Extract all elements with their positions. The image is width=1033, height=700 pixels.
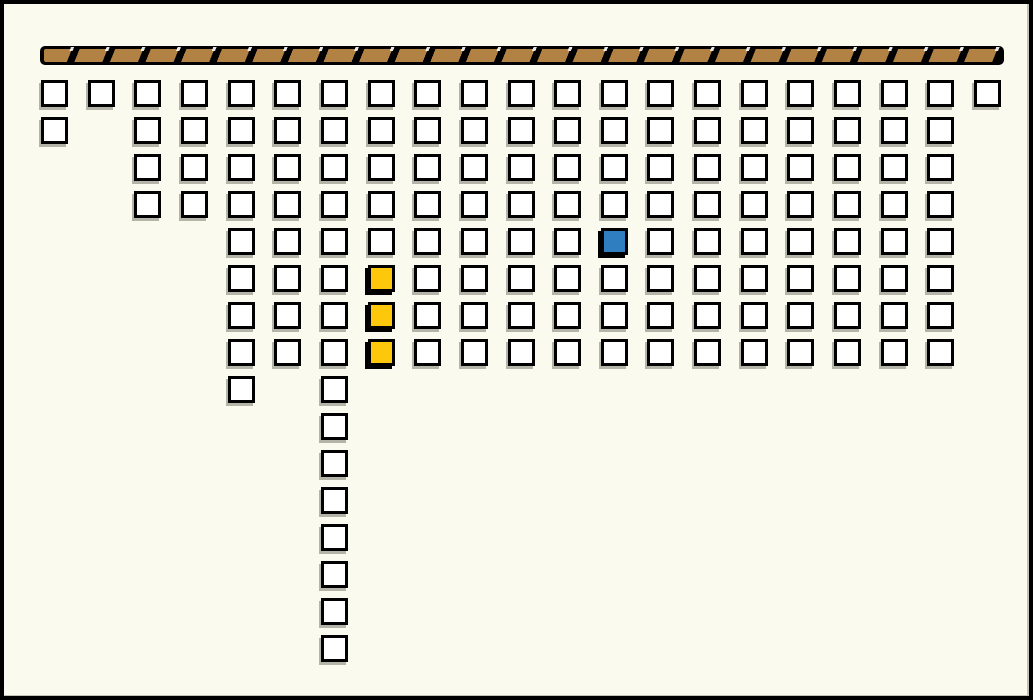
block[interactable] — [694, 339, 721, 366]
block[interactable] — [414, 154, 441, 181]
block[interactable] — [228, 302, 255, 329]
block[interactable] — [647, 339, 674, 366]
block[interactable] — [228, 80, 255, 107]
block[interactable] — [368, 191, 395, 218]
block[interactable] — [834, 228, 861, 255]
block[interactable] — [321, 524, 348, 551]
block[interactable] — [414, 302, 441, 329]
block[interactable] — [834, 339, 861, 366]
game-board — [0, 0, 1033, 700]
block[interactable] — [321, 265, 348, 292]
block[interactable] — [881, 228, 908, 255]
block[interactable] — [927, 191, 954, 218]
block[interactable] — [228, 265, 255, 292]
block[interactable] — [601, 265, 628, 292]
block[interactable] — [321, 413, 348, 440]
block[interactable] — [554, 302, 581, 329]
block[interactable] — [414, 339, 441, 366]
block[interactable] — [554, 265, 581, 292]
block[interactable] — [834, 302, 861, 329]
blue-block[interactable] — [601, 228, 628, 255]
block[interactable] — [321, 376, 348, 403]
block[interactable] — [321, 561, 348, 588]
block[interactable] — [134, 191, 161, 218]
block[interactable] — [927, 117, 954, 144]
block[interactable] — [787, 80, 814, 107]
block[interactable] — [647, 80, 674, 107]
block[interactable] — [694, 228, 721, 255]
block[interactable] — [741, 117, 768, 144]
block[interactable] — [834, 154, 861, 181]
block[interactable] — [881, 302, 908, 329]
block[interactable] — [787, 265, 814, 292]
block[interactable] — [228, 339, 255, 366]
block[interactable] — [647, 191, 674, 218]
block[interactable] — [741, 339, 768, 366]
beam-tick-marks — [44, 47, 1000, 51]
block[interactable] — [694, 191, 721, 218]
block[interactable] — [554, 80, 581, 107]
block[interactable] — [601, 191, 628, 218]
block[interactable] — [927, 228, 954, 255]
block[interactable] — [881, 191, 908, 218]
block[interactable] — [274, 154, 301, 181]
block[interactable] — [181, 191, 208, 218]
block[interactable] — [134, 117, 161, 144]
block[interactable] — [461, 154, 488, 181]
block[interactable] — [228, 117, 255, 144]
block[interactable] — [134, 154, 161, 181]
block[interactable] — [508, 228, 535, 255]
block[interactable] — [321, 117, 348, 144]
block[interactable] — [601, 302, 628, 329]
block[interactable] — [694, 302, 721, 329]
block[interactable] — [321, 154, 348, 181]
block[interactable] — [508, 191, 535, 218]
block[interactable] — [881, 154, 908, 181]
block[interactable] — [647, 228, 674, 255]
block[interactable] — [554, 339, 581, 366]
block[interactable] — [601, 154, 628, 181]
block[interactable] — [274, 339, 301, 366]
block[interactable] — [321, 80, 348, 107]
block[interactable] — [927, 80, 954, 107]
block[interactable] — [134, 80, 161, 107]
block[interactable] — [787, 339, 814, 366]
block[interactable] — [787, 228, 814, 255]
block[interactable] — [414, 265, 441, 292]
block[interactable] — [274, 228, 301, 255]
block[interactable] — [787, 154, 814, 181]
block[interactable] — [414, 191, 441, 218]
block[interactable] — [461, 228, 488, 255]
block[interactable] — [881, 265, 908, 292]
block[interactable] — [554, 191, 581, 218]
block[interactable] — [228, 228, 255, 255]
block[interactable] — [834, 265, 861, 292]
block[interactable] — [368, 117, 395, 144]
block[interactable] — [554, 228, 581, 255]
block[interactable] — [321, 191, 348, 218]
block[interactable] — [741, 154, 768, 181]
block[interactable] — [41, 117, 68, 144]
block[interactable] — [787, 302, 814, 329]
block[interactable] — [694, 265, 721, 292]
block[interactable] — [414, 80, 441, 107]
block[interactable] — [461, 191, 488, 218]
block[interactable] — [974, 80, 1001, 107]
block[interactable] — [787, 191, 814, 218]
yellow-block[interactable] — [368, 265, 395, 292]
block[interactable] — [414, 228, 441, 255]
block[interactable] — [461, 80, 488, 107]
block[interactable] — [88, 80, 115, 107]
block[interactable] — [461, 302, 488, 329]
block[interactable] — [834, 117, 861, 144]
block[interactable] — [181, 117, 208, 144]
block[interactable] — [741, 191, 768, 218]
block[interactable] — [647, 154, 674, 181]
block[interactable] — [274, 302, 301, 329]
block[interactable] — [461, 339, 488, 366]
block[interactable] — [647, 302, 674, 329]
block[interactable] — [787, 117, 814, 144]
block[interactable] — [508, 117, 535, 144]
block[interactable] — [927, 154, 954, 181]
block[interactable] — [414, 117, 441, 144]
block[interactable] — [228, 191, 255, 218]
block[interactable] — [274, 117, 301, 144]
block[interactable] — [321, 598, 348, 625]
block[interactable] — [274, 80, 301, 107]
block[interactable] — [601, 117, 628, 144]
block[interactable] — [461, 117, 488, 144]
block[interactable] — [601, 339, 628, 366]
block[interactable] — [274, 265, 301, 292]
striped-beam — [40, 46, 1004, 65]
block[interactable] — [834, 191, 861, 218]
block[interactable] — [741, 302, 768, 329]
block[interactable] — [41, 80, 68, 107]
block[interactable] — [181, 80, 208, 107]
block[interactable] — [508, 154, 535, 181]
block[interactable] — [368, 228, 395, 255]
block[interactable] — [228, 154, 255, 181]
yellow-block[interactable] — [368, 302, 395, 329]
block[interactable] — [321, 302, 348, 329]
block[interactable] — [741, 265, 768, 292]
block[interactable] — [647, 265, 674, 292]
block[interactable] — [321, 635, 348, 662]
block[interactable] — [927, 302, 954, 329]
block[interactable] — [694, 80, 721, 107]
block[interactable] — [554, 154, 581, 181]
block[interactable] — [694, 154, 721, 181]
block[interactable] — [461, 265, 488, 292]
block[interactable] — [508, 302, 535, 329]
block[interactable] — [508, 80, 535, 107]
block[interactable] — [601, 80, 628, 107]
block[interactable] — [881, 80, 908, 107]
block[interactable] — [321, 450, 348, 477]
block[interactable] — [368, 154, 395, 181]
block[interactable] — [694, 117, 721, 144]
block[interactable] — [508, 265, 535, 292]
block[interactable] — [741, 80, 768, 107]
block[interactable] — [228, 376, 255, 403]
block[interactable] — [834, 80, 861, 107]
block[interactable] — [321, 487, 348, 514]
block[interactable] — [881, 117, 908, 144]
block[interactable] — [927, 265, 954, 292]
block[interactable] — [927, 339, 954, 366]
block[interactable] — [508, 339, 535, 366]
block[interactable] — [321, 228, 348, 255]
block[interactable] — [741, 228, 768, 255]
block[interactable] — [554, 117, 581, 144]
yellow-block[interactable] — [368, 339, 395, 366]
block[interactable] — [368, 80, 395, 107]
block[interactable] — [321, 339, 348, 366]
block[interactable] — [647, 117, 674, 144]
block[interactable] — [881, 339, 908, 366]
block[interactable] — [181, 154, 208, 181]
block[interactable] — [274, 191, 301, 218]
